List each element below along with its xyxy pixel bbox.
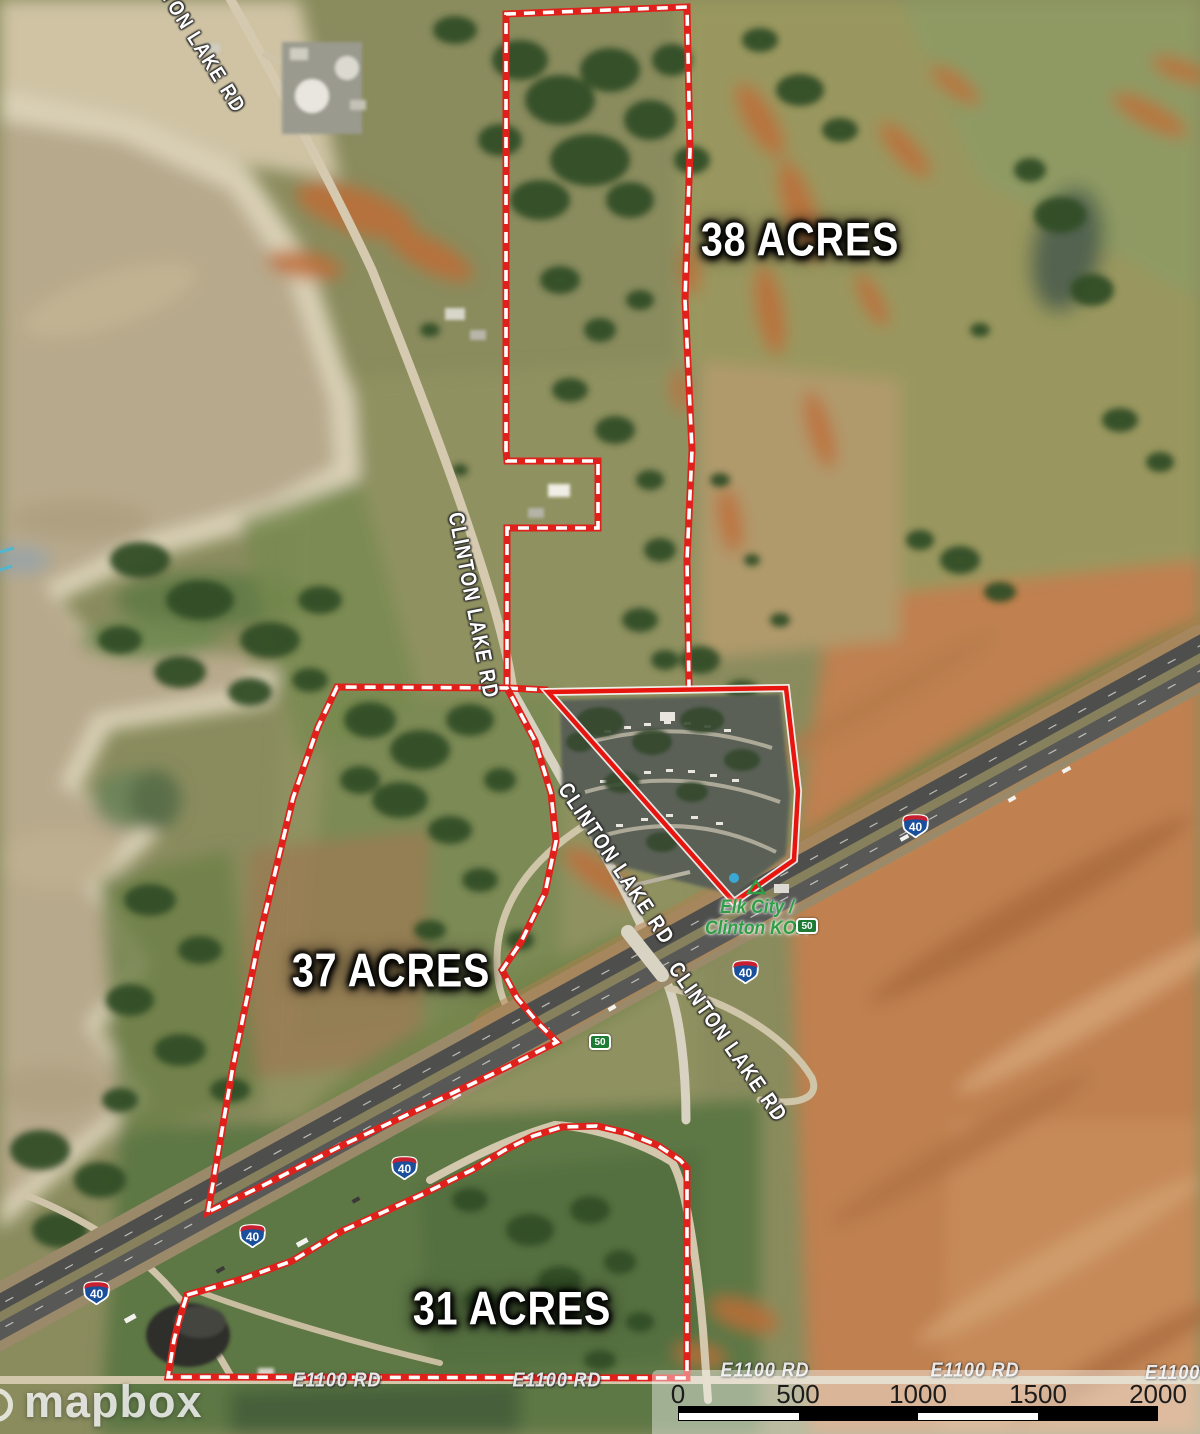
interstate-40-number: 40 — [732, 966, 759, 980]
highway-50-number: 50 — [801, 921, 812, 932]
scale-bar: 0 500 1000 1500 2000 — [652, 1370, 1200, 1434]
scale-segment — [679, 1413, 799, 1420]
poi-label-koa-line2: Clinton KOA — [705, 918, 809, 939]
scale-segment — [1038, 1413, 1158, 1420]
interstate-40-shield: 40 — [83, 1281, 110, 1305]
highway-50-shield: 50 — [589, 1034, 611, 1050]
interstate-40-shield: 40 — [732, 960, 759, 984]
satellite-imagery — [0, 0, 1200, 1434]
parcel-label-38-acres: 38 ACRES — [701, 212, 899, 267]
interstate-40-number: 40 — [83, 1287, 110, 1301]
interstate-40-number: 40 — [391, 1162, 418, 1176]
scale-segment — [799, 1413, 919, 1420]
parcel-label-31-acres: 31 ACRES — [413, 1281, 611, 1336]
interstate-40-shield: 40 — [391, 1156, 418, 1180]
highway-50-number: 50 — [594, 1037, 605, 1048]
campground-icon — [744, 878, 768, 896]
satellite-map[interactable]: 38 ACRES 37 ACRES 31 ACRES CLINTON LAKE … — [0, 0, 1200, 1434]
parcel-label-37-acres: 37 ACRES — [292, 943, 490, 998]
poi-label-koa: Elk City / Clinton KOA — [705, 897, 809, 939]
scale-segment — [918, 1413, 1038, 1420]
interstate-40-number: 40 — [902, 820, 929, 834]
road-label-e1100-rd-2: E1100 RD — [513, 1370, 602, 1393]
poi-label-koa-line1: Elk City / — [705, 897, 809, 918]
mapbox-logo[interactable]: mapbox — [24, 1376, 203, 1428]
interstate-40-number: 40 — [239, 1230, 266, 1244]
interstate-40-shield: 40 — [239, 1224, 266, 1248]
scale-bar-segments — [678, 1412, 1158, 1421]
road-label-e1100-rd-1: E1100 RD — [293, 1370, 382, 1393]
highway-50-shield: 50 — [796, 918, 818, 934]
interstate-40-shield: 40 — [902, 814, 929, 838]
